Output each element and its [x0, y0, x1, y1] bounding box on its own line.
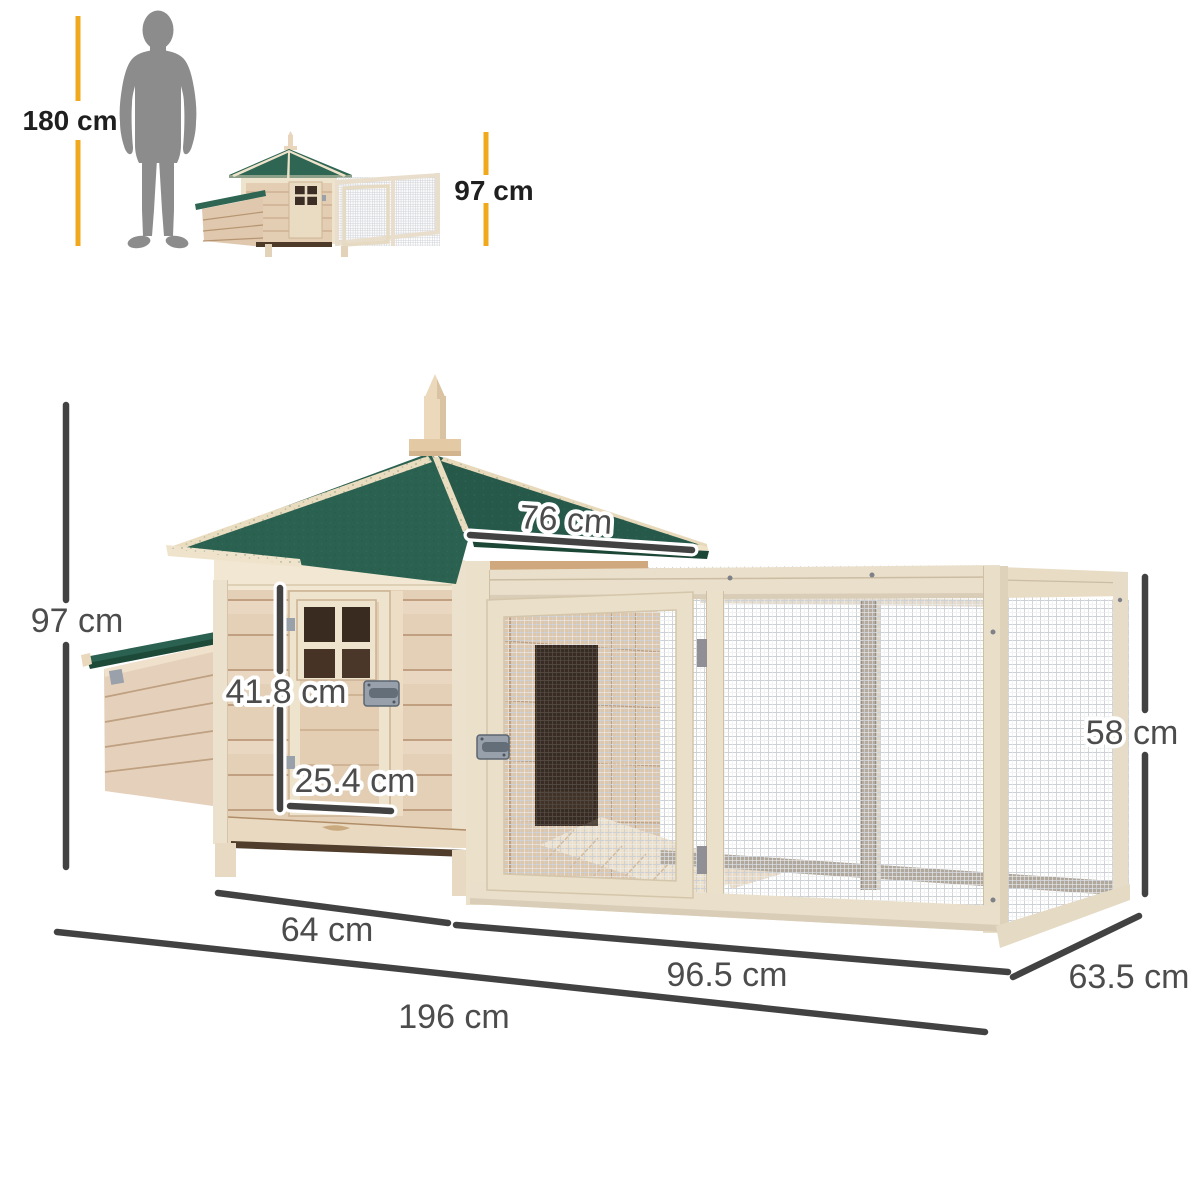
svg-text:25.4 cm: 25.4 cm	[295, 762, 416, 800]
svg-text:180 cm: 180 cm	[23, 105, 118, 136]
svg-text:64 cm: 64 cm	[281, 911, 374, 949]
svg-text:41.8 cm: 41.8 cm	[226, 673, 347, 711]
svg-text:196 cm: 196 cm	[398, 998, 510, 1036]
svg-text:63.5 cm: 63.5 cm	[1069, 958, 1190, 996]
svg-text:97 cm: 97 cm	[31, 602, 124, 640]
svg-text:96.5 cm: 96.5 cm	[667, 956, 788, 994]
svg-text:76 cm: 76 cm	[519, 498, 614, 542]
svg-text:58 cm: 58 cm	[1086, 714, 1179, 752]
svg-text:97 cm: 97 cm	[454, 175, 533, 206]
